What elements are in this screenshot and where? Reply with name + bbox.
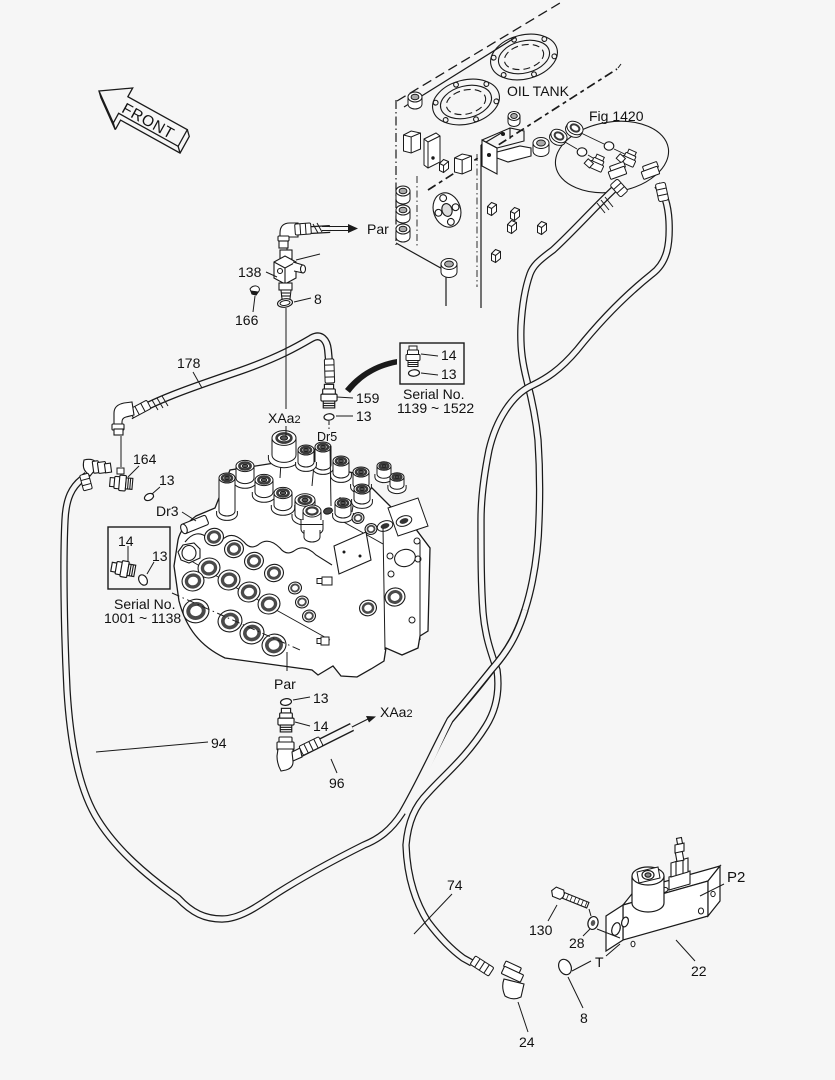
svg-text:Dr3: Dr3: [156, 503, 179, 519]
svg-text:13: 13: [356, 408, 372, 424]
svg-text:OIL TANK: OIL TANK: [507, 83, 570, 99]
svg-text:130: 130: [529, 922, 553, 938]
svg-text:14: 14: [313, 718, 329, 734]
svg-text:13: 13: [152, 548, 168, 564]
svg-text:Dr5: Dr5: [317, 430, 337, 444]
svg-text:24: 24: [519, 1034, 535, 1050]
svg-text:14: 14: [441, 347, 457, 363]
svg-text:8: 8: [314, 291, 322, 307]
svg-text:164: 164: [133, 451, 157, 467]
svg-text:22: 22: [691, 963, 707, 979]
svg-text:28: 28: [569, 935, 585, 951]
svg-text:74: 74: [447, 877, 463, 893]
svg-text:94: 94: [211, 735, 227, 751]
svg-text:14: 14: [118, 533, 134, 549]
svg-text:13: 13: [159, 472, 175, 488]
svg-text:Par: Par: [274, 676, 296, 692]
svg-text:T: T: [595, 954, 604, 970]
svg-text:8: 8: [580, 1010, 588, 1026]
svg-text:Par: Par: [367, 221, 389, 237]
svg-text:96: 96: [329, 775, 345, 791]
svg-text:P2: P2: [727, 869, 745, 886]
svg-text:159: 159: [356, 390, 380, 406]
svg-text:1001 ~ 1138: 1001 ~ 1138: [104, 610, 181, 626]
svg-text:178: 178: [177, 355, 201, 371]
svg-text:1139 ~ 1522: 1139 ~ 1522: [397, 400, 474, 416]
svg-text:13: 13: [313, 690, 329, 706]
svg-text:166: 166: [235, 312, 259, 328]
svg-text:13: 13: [441, 366, 457, 382]
svg-text:138: 138: [238, 264, 262, 280]
